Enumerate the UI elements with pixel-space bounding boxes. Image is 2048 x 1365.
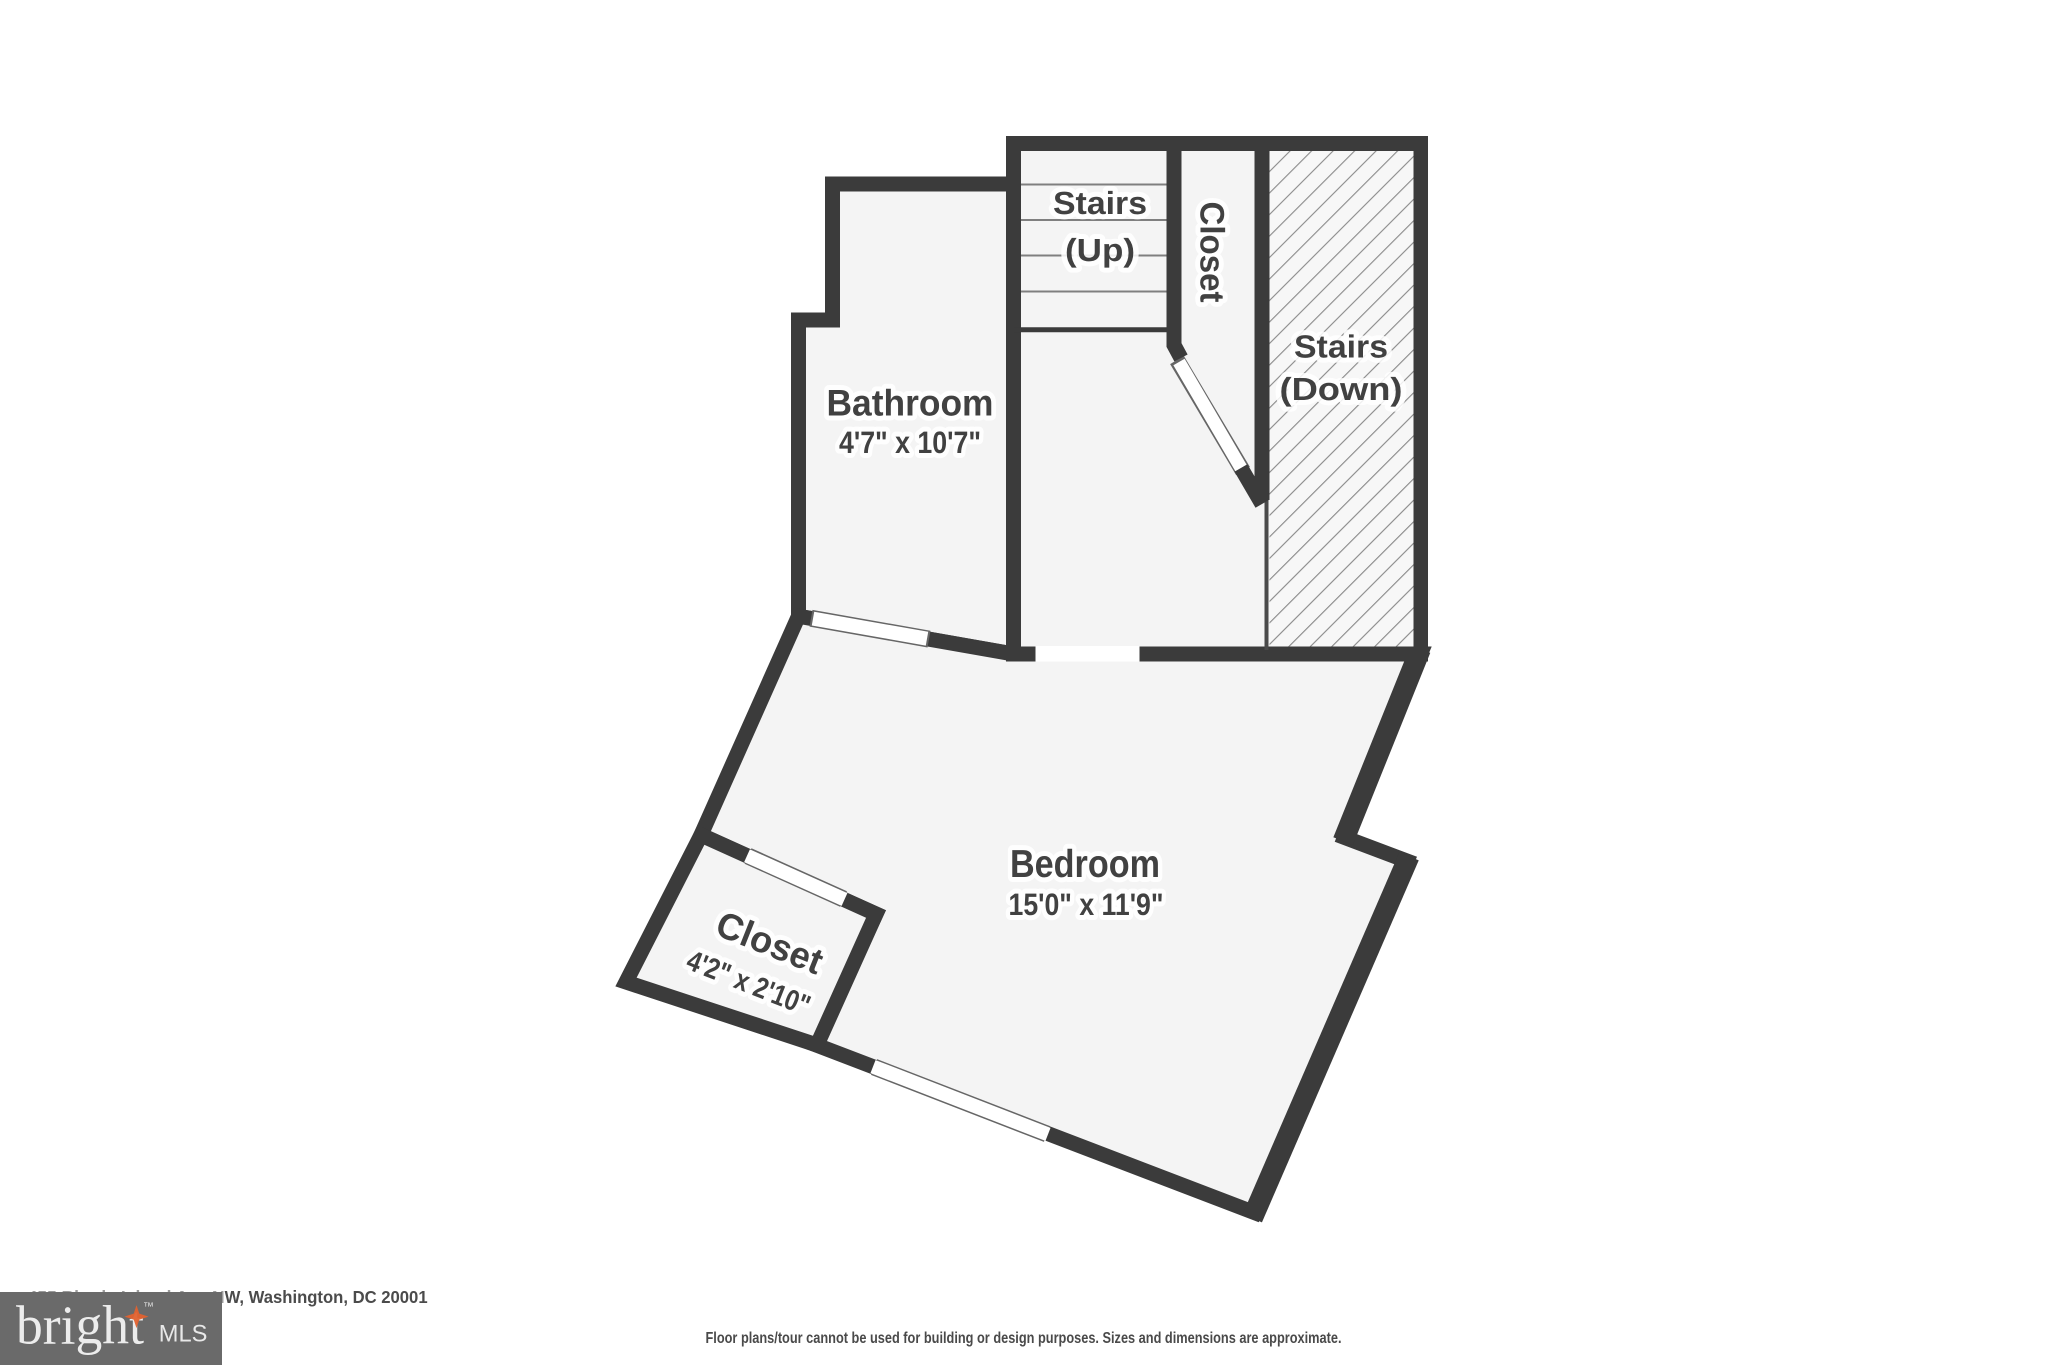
svg-text:Stairs: Stairs (1053, 185, 1147, 221)
svg-text:™: ™ (143, 1301, 154, 1313)
svg-text:Floor plans/tour cannot be use: Floor plans/tour cannot be used for buil… (706, 1330, 1342, 1347)
svg-text:bright: bright (16, 1295, 144, 1356)
svg-text:Bathroom: Bathroom (827, 383, 994, 424)
svg-text:Bedroom: Bedroom (1010, 843, 1160, 886)
svg-text:4'7" x 10'7": 4'7" x 10'7" (839, 425, 981, 460)
svg-text:(Up): (Up) (1065, 232, 1135, 268)
svg-text:W, Washington, DC 20001: W, Washington, DC 20001 (225, 1287, 428, 1307)
svg-text:MLS: MLS (159, 1321, 208, 1348)
svg-text:(Down): (Down) (1280, 371, 1403, 407)
svg-text:15'0" x 11'9": 15'0" x 11'9" (1009, 887, 1164, 922)
svg-text:Stairs: Stairs (1294, 329, 1388, 365)
svg-text:Closet: Closet (1193, 202, 1231, 303)
